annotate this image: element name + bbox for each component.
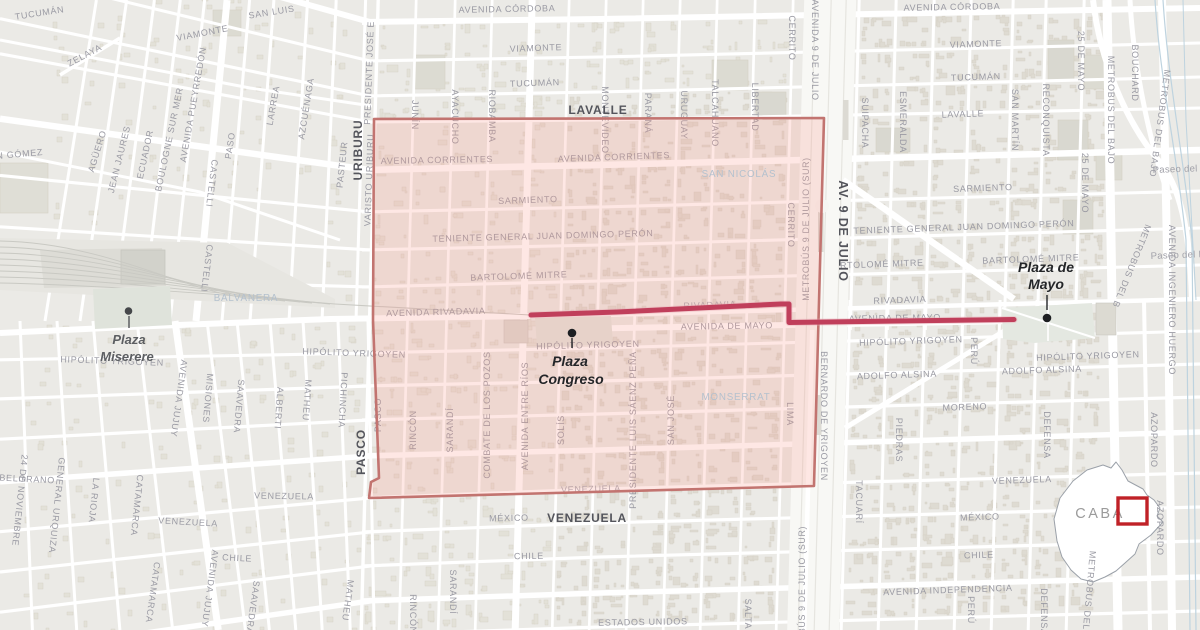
svg-text:TUCUMÁN: TUCUMÁN: [951, 71, 1001, 83]
svg-text:RINCÓN: RINCÓN: [408, 594, 418, 630]
svg-text:Paseo del B: Paseo del B: [1150, 249, 1200, 262]
svg-text:AVENIDA INGENIERO HUERGO: AVENIDA INGENIERO HUERGO: [1167, 225, 1177, 375]
svg-text:PASCO: PASCO: [354, 429, 368, 475]
svg-text:VENEZUELA: VENEZUELA: [547, 511, 627, 525]
svg-text:AVENIDA CÓRDOBA: AVENIDA CÓRDOBA: [903, 1, 1000, 13]
svg-text:SAN MARTÍN: SAN MARTÍN: [1010, 89, 1020, 151]
svg-text:VIAMONTE: VIAMONTE: [949, 38, 1002, 50]
svg-text:AZOPARDO: AZOPARDO: [1155, 500, 1165, 555]
svg-text:TUCUMÁN: TUCUMÁN: [510, 77, 560, 89]
svg-text:SUIPACHA: SUIPACHA: [860, 98, 870, 149]
svg-text:BALVANERA: BALVANERA: [214, 293, 279, 304]
svg-text:DEFENSA: DEFENSA: [1039, 588, 1049, 630]
svg-text:PERÚ: PERÚ: [966, 596, 976, 624]
svg-text:PERÚ: PERÚ: [969, 337, 979, 365]
svg-text:DEFENSA: DEFENSA: [1042, 411, 1052, 458]
svg-text:VIAMONTE: VIAMONTE: [509, 42, 562, 54]
svg-text:VENEZUELA: VENEZUELA: [254, 490, 314, 501]
svg-text:Miserere: Miserere: [100, 349, 153, 364]
svg-text:PIEDRAS: PIEDRAS: [894, 418, 904, 462]
svg-text:Plaza: Plaza: [552, 353, 588, 369]
svg-text:RIVADAVIA: RIVADAVIA: [873, 294, 926, 306]
svg-text:Congreso: Congreso: [538, 371, 604, 387]
svg-text:MÉXICO: MÉXICO: [489, 513, 529, 524]
svg-text:SALTA: SALTA: [743, 599, 753, 630]
svg-text:SARANDÍ: SARANDÍ: [448, 570, 458, 615]
svg-text:25 DE MAYO: 25 DE MAYO: [1076, 31, 1086, 91]
svg-text:VENEZUELA: VENEZUELA: [992, 474, 1052, 486]
svg-text:URIBURU: URIBURU: [351, 120, 365, 181]
svg-text:TACUARÍ: TACUARÍ: [854, 480, 864, 524]
svg-text:Mayo: Mayo: [1028, 276, 1064, 292]
svg-text:CERRITO: CERRITO: [787, 15, 797, 60]
svg-text:Paseo del B: Paseo del B: [1152, 163, 1200, 176]
svg-text:AV. 9 DE JULIO: AV. 9 DE JULIO: [836, 180, 850, 282]
svg-text:BERNARDO DE YRIGOYEN: BERNARDO DE YRIGOYEN: [819, 351, 829, 481]
svg-text:Plaza: Plaza: [112, 332, 145, 347]
svg-text:SAN NICOLÁS: SAN NICOLÁS: [702, 169, 777, 180]
svg-text:CHILE: CHILE: [964, 549, 994, 560]
svg-text:AVENIDA 9 DE JULIO: AVENIDA 9 DE JULIO: [810, 0, 820, 101]
svg-text:Plaza de: Plaza de: [1018, 259, 1074, 275]
svg-text:BOUCHARD: BOUCHARD: [1130, 44, 1140, 101]
svg-text:AVENIDA CÓRDOBA: AVENIDA CÓRDOBA: [458, 3, 555, 15]
svg-text:RECONQUISTA: RECONQUISTA: [1041, 83, 1051, 156]
svg-text:AZOPARDO: AZOPARDO: [1149, 412, 1159, 467]
svg-text:LAVALLE: LAVALLE: [568, 103, 627, 117]
svg-text:MONSERRAT: MONSERRAT: [701, 392, 770, 403]
svg-text:CHILE: CHILE: [514, 551, 544, 562]
svg-text:METROBUS DEL BAJO: METROBUS DEL BAJO: [1106, 56, 1116, 165]
svg-text:MÉXICO: MÉXICO: [960, 511, 1000, 522]
svg-text:MORENO: MORENO: [942, 401, 987, 413]
svg-text:ESMERALDA: ESMERALDA: [898, 91, 908, 153]
svg-text:BÚS 9 DE JULIO (SUR): BÚS 9 DE JULIO (SUR): [797, 526, 807, 630]
svg-text:25 DE MAYO: 25 DE MAYO: [1080, 153, 1090, 213]
svg-text:CHILE: CHILE: [222, 552, 252, 564]
svg-text:ESTADOS UNIDOS: ESTADOS UNIDOS: [598, 616, 688, 628]
svg-text:SARMIENTO: SARMIENTO: [953, 182, 1013, 194]
svg-text:LAVALLE: LAVALLE: [941, 108, 984, 119]
